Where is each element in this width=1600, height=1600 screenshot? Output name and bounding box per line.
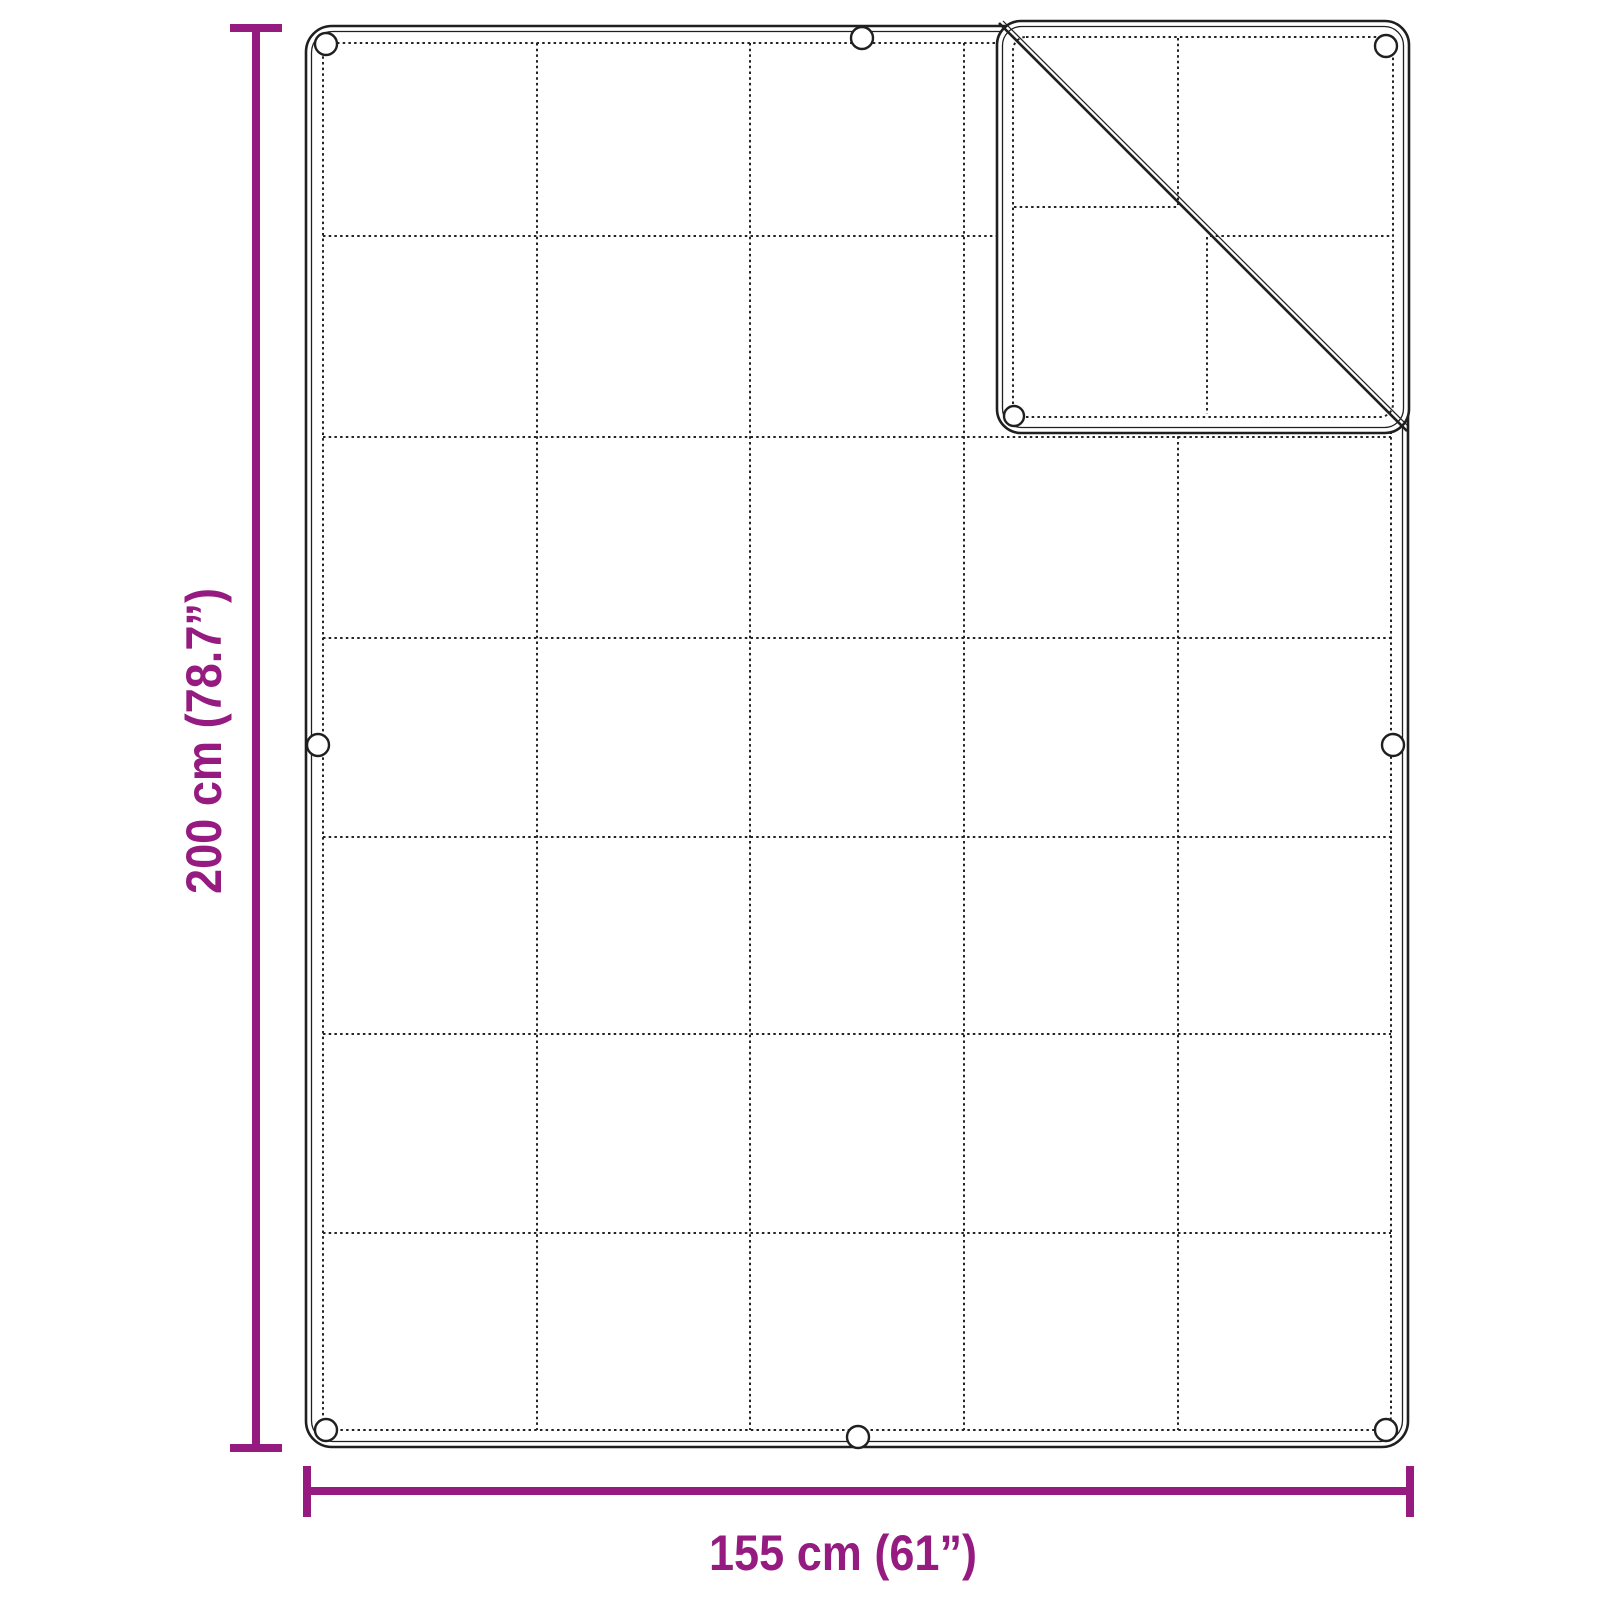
grommet-fold-top-right xyxy=(1375,35,1397,57)
folded-corner-flap xyxy=(997,21,1409,433)
height-dimension: 200 cm (78.7”) xyxy=(176,28,282,1448)
grommet-left-middle xyxy=(307,734,329,756)
grommet-top-middle xyxy=(851,27,873,49)
grommet-bottom-right xyxy=(1375,1419,1397,1441)
width-dimension: 155 cm (61”) xyxy=(307,1466,1410,1581)
grommet-bottom-middle xyxy=(847,1426,869,1448)
grommet-top-left xyxy=(315,33,337,55)
grommet-bottom-left xyxy=(315,1419,337,1441)
height-dimension-label: 200 cm (78.7”) xyxy=(176,588,232,894)
dimension-diagram: 200 cm (78.7”) 155 cm (61”) xyxy=(0,0,1600,1600)
grommet-right-middle xyxy=(1382,734,1404,756)
width-dimension-label: 155 cm (61”) xyxy=(709,1525,977,1581)
blanket-dimension-drawing: 200 cm (78.7”) 155 cm (61”) xyxy=(0,0,1600,1600)
grommet-fold-bottom-left xyxy=(1004,406,1024,426)
